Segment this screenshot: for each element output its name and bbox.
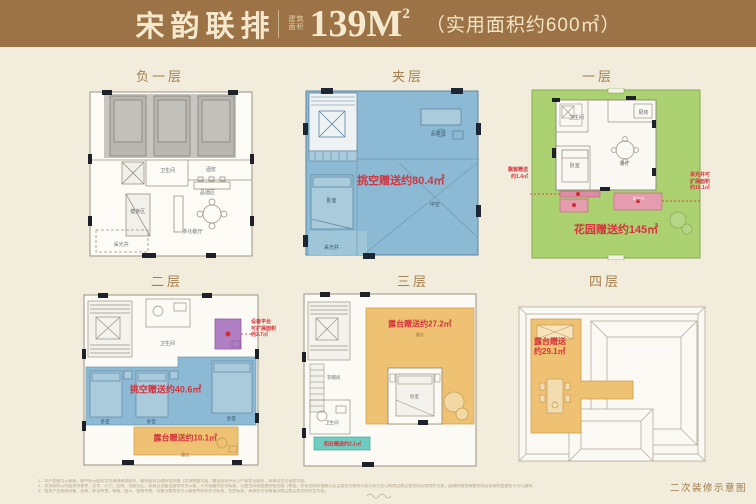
- area-value: 139M2: [309, 5, 409, 43]
- floor-label-f3: 三层: [353, 271, 473, 290]
- room-label-cellar: 酒窖: [206, 166, 216, 173]
- floorplan-f3: 露台赠送约27.2㎡ 露台 阳台赠送约2.1㎡ 衣帽间 卫生间 卧室: [302, 292, 478, 468]
- area-superscript: 2: [402, 6, 410, 22]
- f1-baywindow-strip: [560, 191, 600, 197]
- floor-label-f2: 二层: [107, 271, 227, 290]
- f4-terrace-gift-text: 露台赠送 约29.1㎡: [534, 337, 566, 357]
- floorplan-mezz: 挑空赠送约80.4㎡ 品茶区 卧室 中空 采光井: [303, 87, 481, 259]
- room-label-bed: 卧室: [570, 162, 580, 169]
- floor-label-mezz: 夹层: [348, 66, 468, 85]
- floorplan-b1: 卫生间 酒窖 品酒区 健身区 多功能厅 采光井: [88, 90, 254, 258]
- room-label-bath: 卫生间: [569, 114, 584, 121]
- room-label-void: 中空: [430, 201, 440, 208]
- room-label-terrace: 露台: [416, 332, 424, 338]
- f1-lightwell-annotation-line3: 约10.1㎡: [690, 185, 710, 192]
- room-label-lightwell: 采光井: [114, 241, 129, 248]
- mezz-stairs-icon: [309, 93, 357, 161]
- disclaimer-line3: 3、相关户型装修风格、家具、陈设布置、绿植、图示、管线布置、设备位置等仅为示意参…: [38, 489, 533, 494]
- f4-terrace-gift-line2: 约29.1㎡: [534, 347, 566, 357]
- room-label-bath: 卫生间: [160, 167, 175, 174]
- mezz-gift-text: 挑空赠送约80.4㎡: [357, 172, 444, 188]
- f3-terrace-gift-text: 露台赠送约27.2㎡: [388, 318, 452, 329]
- room-label-bed3: 卧室: [227, 416, 236, 422]
- f2-equipment-annotation: 设备平台 可扩展面积 约2.7㎡: [251, 319, 276, 339]
- b1-parking-area: [104, 94, 236, 158]
- f3-stairs-icon: [308, 302, 350, 360]
- room-label-bed2: 卧室: [147, 419, 156, 425]
- f2-terrace-gift-text: 露台赠送约10.1㎡: [153, 433, 217, 444]
- room-label-cloak: 衣帽间: [327, 375, 341, 381]
- floor-label-f4: 四层: [545, 271, 665, 290]
- room-label-lightwell: 采光井: [324, 244, 339, 251]
- renovation-note: 二次装修示意图: [647, 480, 747, 494]
- project-title: 宋韵联排: [135, 3, 275, 45]
- f3-wardrobe-icon: [310, 364, 324, 412]
- f2-void-gift-text: 挑空赠送约40.6㎡: [130, 383, 202, 396]
- floorplan-f1: 花园赠送约145㎡ 卫生间 厨房 卧室 餐厅 采光井: [530, 88, 702, 260]
- floor-label-f1: 一层: [538, 66, 658, 85]
- room-label-hall: 多功能厅: [183, 228, 203, 235]
- f2-equipment-annotation-line3: 约2.7㎡: [251, 332, 276, 339]
- b1-stairs-icon: [122, 162, 144, 184]
- room-label-gym: 健身区: [130, 208, 145, 215]
- header-band: 宋韵联排 建筑 面积 139M2 （实用面积约600㎡）: [0, 0, 756, 47]
- f1-garden-gift-text: 花园赠送约145㎡: [574, 221, 658, 237]
- room-label-bed1: 卧室: [101, 419, 110, 425]
- area-small-line1: 建筑: [288, 16, 304, 24]
- room-label-bed: 卧室: [326, 197, 336, 204]
- disclaimer-block: 1、本户型图为示意图，图中所示面积均为预测建筑面积，最终面积以政府相关部门实测数…: [38, 479, 533, 494]
- room-label-kitchen: 厨房: [639, 109, 649, 116]
- floorplan-f4: 露台赠送 约29.1㎡: [513, 293, 713, 475]
- header-divider: [278, 10, 279, 38]
- f4-floorplan-graphic: [513, 293, 713, 475]
- room-label-bed: 卧室: [410, 394, 419, 400]
- room-label-lightwell: 采光井: [632, 196, 644, 202]
- poster-page: 宋韵联排 建筑 面积 139M2 （实用面积约600㎡） 负一层 夹层 一层 二…: [0, 0, 756, 504]
- floor-label-b1: 负一层: [100, 66, 220, 85]
- f4-terrace-gift-line1: 露台赠送: [534, 337, 566, 347]
- area-number: 139M: [309, 3, 402, 45]
- room-label-tasting: 品酒区: [200, 189, 215, 196]
- room-label-terrace: 露台: [181, 452, 189, 458]
- room-label-bath: 卫生间: [160, 340, 175, 347]
- room-label-bath: 卫生间: [325, 420, 339, 426]
- f3-balcony-gift-text: 阳台赠送约2.1㎡: [324, 441, 361, 448]
- footer-ornament: [366, 492, 392, 500]
- floorplan-f2: 挑空赠送约40.6㎡ 露台赠送约10.1㎡ 卫生间 卧室 卧室 卧室 露台: [82, 293, 260, 468]
- usable-area-text: （实用面积约600㎡）: [426, 10, 621, 37]
- f2-stairs-icon: [88, 301, 132, 357]
- f1-baywindow-annotation-line2: 约1.4㎡: [496, 174, 528, 181]
- f1-baywindow-annotation: 飘窗赠送 约1.4㎡: [496, 167, 528, 180]
- f1-lightwell-annotation-line1: 采光井可: [690, 172, 710, 179]
- area-small-label: 建筑 面积: [288, 16, 304, 32]
- area-small-line2: 面积: [288, 24, 304, 32]
- room-label-dining: 餐厅: [620, 160, 630, 167]
- f1-lightwell-annotation: 采光井可 扩展面积 约10.1㎡: [690, 172, 710, 192]
- room-label-tea: 品茶区: [431, 130, 446, 137]
